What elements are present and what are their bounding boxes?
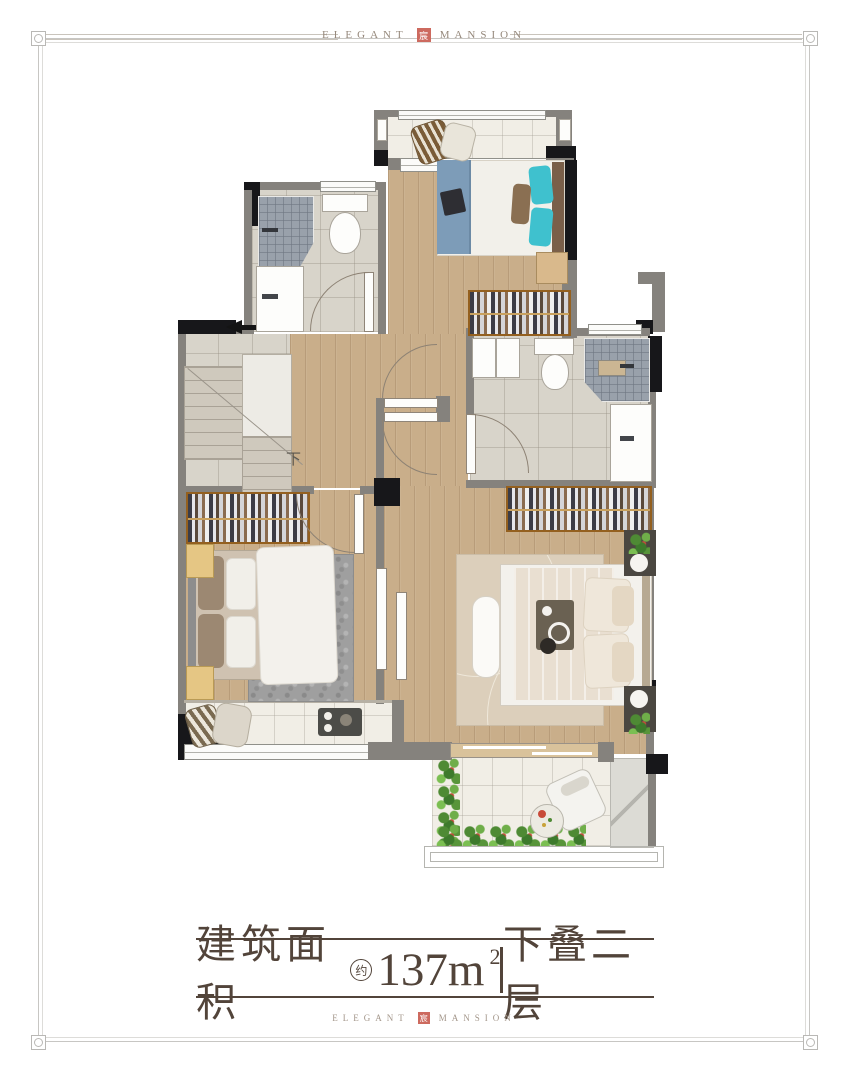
pillow [226, 558, 256, 610]
side-table [530, 804, 564, 838]
nightstand [186, 666, 214, 700]
tray-pot [540, 638, 556, 654]
door-leaf [384, 398, 438, 408]
terrace-sliding-door [450, 743, 602, 758]
bed-2-headboard [552, 162, 564, 252]
table-flowers [538, 810, 546, 818]
toilet-tank [534, 338, 574, 355]
bed-tray [440, 188, 467, 216]
window [320, 181, 376, 192]
stair-landing [242, 354, 292, 438]
entry-arrow-tail [242, 325, 256, 330]
toilet-tank [322, 194, 368, 212]
column [648, 336, 662, 392]
plant [628, 712, 650, 734]
brand-word-right: MANSION [439, 1013, 516, 1023]
door-leaf [354, 494, 364, 554]
vanity-sink [610, 404, 652, 482]
toilet-bowl [329, 212, 361, 254]
area-value: 约 137m 2 [350, 943, 500, 997]
tray-cup [324, 724, 332, 732]
washer [472, 338, 496, 378]
window [398, 110, 546, 120]
wall [376, 398, 384, 490]
cushion [211, 701, 254, 749]
stair-flight [184, 366, 244, 460]
nightstand [186, 544, 214, 578]
wardrobe [186, 492, 310, 544]
pier-inset [559, 119, 571, 141]
plant [628, 532, 650, 554]
column [646, 754, 668, 774]
window [184, 744, 398, 760]
column [374, 150, 388, 166]
footer-brand: ELEGANT 宸 MANSION [0, 1012, 848, 1024]
shower-head-icon [262, 228, 278, 232]
lamp [630, 554, 648, 572]
brand-word-left: ELEGANT [332, 1013, 409, 1023]
shower-fixture [598, 360, 626, 376]
faucet-icon [262, 294, 278, 299]
tray-cup [542, 606, 552, 616]
caption-rule-bottom [196, 996, 654, 998]
tray-pot [340, 714, 352, 726]
pillow [612, 642, 634, 682]
bed-1-duvet [256, 545, 339, 686]
pillow [612, 586, 634, 626]
faucet-icon [620, 436, 634, 441]
caption: 建筑面积 约 137m 2 下叠二层 [196, 944, 654, 996]
area-number: 137m [377, 943, 484, 997]
area-label: 建筑面积 [196, 912, 350, 1028]
area-sup: 2 [489, 944, 500, 970]
shower-handle-icon [620, 364, 634, 368]
vanity-sink [256, 266, 304, 332]
stairs-down-label: 下 [286, 448, 301, 469]
floorplan: 下 [0, 0, 848, 1080]
column [374, 478, 400, 506]
pillow [226, 616, 256, 668]
floorplan-page: ELEGANT 宸 MANSION [0, 0, 848, 1080]
entry-arrow-icon [226, 320, 242, 334]
sliding-door-panel [376, 568, 387, 670]
wall [378, 182, 386, 334]
wall [388, 158, 400, 170]
wardrobe [468, 290, 571, 336]
floor-label: 下叠二层 [503, 912, 654, 1028]
brand-seal-icon: 宸 [418, 1012, 430, 1024]
pillow [198, 614, 224, 668]
wall [652, 272, 665, 332]
pillow [528, 165, 554, 205]
pillow [528, 207, 553, 247]
approx-circle: 约 [350, 959, 372, 981]
bench [472, 596, 500, 678]
pier-inset [377, 119, 387, 141]
wardrobe [506, 486, 652, 532]
sliding-door-panel [396, 592, 407, 680]
bed-master-headboard [642, 568, 650, 704]
toilet-bowl [541, 354, 569, 390]
wall [598, 742, 614, 762]
washer [496, 338, 520, 378]
terrace-railing [430, 852, 658, 862]
pillow [511, 183, 532, 224]
wall [244, 190, 252, 334]
nightstand [536, 252, 568, 284]
lamp [630, 690, 648, 708]
window [588, 324, 642, 335]
tray-cup [324, 712, 332, 720]
wall [436, 396, 450, 422]
